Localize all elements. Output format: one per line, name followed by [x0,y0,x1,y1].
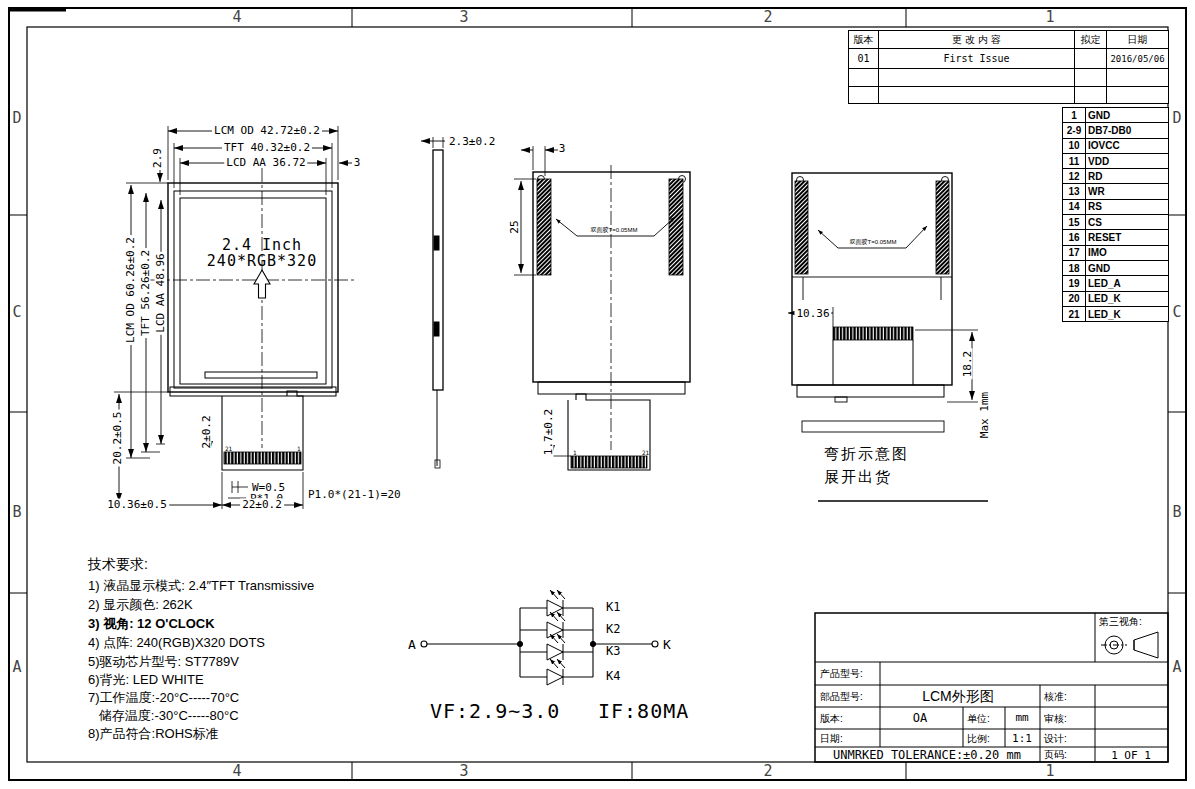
zone-col-label: 4 [232,764,241,779]
tech-note-line: 5)驱动芯片型号: ST7789V [88,653,239,671]
screen-size-label: 2.4 Inch [222,238,302,253]
led-circuit-geometry [421,590,658,685]
pin-table: 1GND 2-9DB7-DB0 10IOVCC 11VDD 12RD 13WR … [1062,107,1169,322]
dim-fpc-offset: 10.36±0.5 [105,499,169,510]
pin-name: WR [1086,184,1169,199]
led-branch-label: K3 [606,645,620,657]
side-view-geometry [421,137,445,468]
zone-col-label: 3 [459,10,468,25]
pin-number: 18 [1063,260,1086,275]
scale-value: 1:1 [1012,733,1032,744]
bend-caption-line2: 展开出货 [824,469,892,484]
tech-note-line: 6)背光: LED WHITE [88,671,204,689]
unit-value: mm [1015,712,1028,723]
tech-note-line: 4) 点阵: 240(RGB)X320 DOTS [88,634,265,652]
dim-lcm-od-height: LCM OD 60.26±0.2 [125,235,136,345]
led-branch-label: K2 [606,623,620,635]
zone-col-label: 4 [232,10,241,25]
led-branch-label: K1 [606,601,620,613]
revision-table: 版本 更 改 内 容 拟定 日期 01 First Issue 2016/05/… [848,30,1169,104]
zone-row-label: D [1172,111,1181,126]
tech-note-line: 储存温度:-30°C-----80°C [88,707,239,725]
revision-rev [849,69,879,87]
pin-name: DB7-DB0 [1086,123,1169,138]
pin-name: IOVCC [1086,138,1169,153]
dim-lcd-aa-height: LCD AA 48.96 [155,251,166,334]
product-model-label: 产品型号: [820,669,863,679]
back-view-geometry [514,146,690,470]
revision-header-drafted: 拟定 [1075,31,1107,49]
pin-name: GND [1086,108,1169,123]
zone-row-label: D [12,111,21,126]
version-value: OA [913,712,927,724]
review-label: 审核: [1044,714,1067,724]
pin-number: 14 [1063,199,1086,214]
fpc-pin-label: 1 [573,450,577,456]
dim-fpc-length: 20.2±0.5 [112,410,123,467]
part-model-label: 部品型号: [820,692,863,702]
tolerance-note: UNMRKED TOLERANCE:±0.20 mm [833,749,1021,761]
pin-name: VDD [1086,153,1169,168]
led-if-spec: IF:80MA [598,701,689,721]
revision-row [849,87,1169,104]
revision-row: 01 First Issue 2016/05/06 [849,49,1169,69]
part-model-value: LCM外形图 [922,689,994,703]
revision-rev: 01 [849,49,879,69]
tape-note: 双面胶T=0.05MM [591,227,638,233]
tech-note-line: 1) 液晶显示模式: 2.4″TFT Transmissive [88,577,314,595]
pin-number: 2-9 [1063,123,1086,138]
led-vf-spec: VF:2.9~3.0 [430,701,560,721]
fpc-pin-label: 21 [642,450,649,456]
pin-name: LED_K [1086,306,1169,321]
zone-row-label: C [12,305,21,320]
zone-row-label: A [1172,660,1181,675]
dim-tape-length: 25 [509,218,520,235]
pin-number: 16 [1063,230,1086,245]
page-label: 页码: [1044,750,1067,760]
revision-header-content: 更 改 内 容 [879,31,1075,49]
dim-fpc-exit: 1.7±0.2 [543,407,554,457]
pin-number: 13 [1063,184,1086,199]
zone-row-label: A [12,660,21,675]
pin-name: LED_K [1086,291,1169,306]
led-branch-label: K4 [606,670,620,682]
version-label: 版本: [820,714,843,724]
tech-note-line: 7)工作温度:-20°C-----70°C [88,689,239,707]
zone-row-label: B [12,505,21,520]
revision-drafted [1075,87,1107,104]
pin-number: 20 [1063,291,1086,306]
dim-connector-offset: 10.36 [794,308,831,319]
pin-name: RESET [1086,230,1169,245]
dim-tape-edge: 3 [559,143,566,154]
revision-content: First Issue [879,49,1075,69]
screen-resolution-label: 240*RGB*320 [207,254,317,269]
zone-col-label: 2 [763,764,772,779]
dim-thickness: 2.3±0.2 [447,136,497,147]
dim-lcm-od-width: LCM OD 42.72±0.2 [212,125,322,136]
led-anode-label: A [408,638,416,651]
third-angle-symbol [1101,632,1158,658]
bend-caption-line1: 弯折示意图 [824,446,909,461]
dim-lcd-aa-width: LCD AA 36.72 [224,157,307,168]
pin-number: 17 [1063,245,1086,260]
revision-date [1107,87,1169,104]
design-label: 设计: [1044,734,1067,744]
dim-fpc-top: 2±0.2 [201,413,212,450]
engineering-drawing-sheet: 4 3 2 1 4 3 2 1 D C B A D C B A 版本 更 改 内… [0,0,1195,789]
page-value: 1 OF 1 [1111,750,1151,761]
pin-name: LED_A [1086,276,1169,291]
pin-number: 11 [1063,153,1086,168]
zone-col-label: 3 [459,764,468,779]
unit-label: 单位: [967,714,990,724]
pin-number: 1 [1063,108,1086,123]
revision-date [1107,69,1169,87]
dim-side-gap: 3 [354,157,361,168]
dim-max-protrusion: Max 1mm [979,390,990,440]
zone-row-label: B [1172,505,1181,520]
tech-notes-title: 技术要求: [88,556,148,574]
dim-top-offset: 2.9 [152,146,163,170]
tech-note-line: 3) 视角: 12 O'CLOCK [88,615,215,633]
pin-number: 10 [1063,138,1086,153]
revision-drafted [1075,69,1107,87]
pin-name: GND [1086,260,1169,275]
tech-note-line: 2) 显示颜色: 262K [88,596,193,614]
scale-label: 比例: [967,734,990,744]
third-angle-label: 第三视角: [1099,617,1142,627]
revision-rev [849,87,879,104]
revision-content [879,87,1075,104]
revision-header-date: 日期 [1107,31,1169,49]
fpc-pin-label: 21 [225,446,232,452]
revision-content [879,69,1075,87]
date-label: 日期: [820,734,843,744]
pin-number: 15 [1063,215,1086,230]
pin-name: RD [1086,169,1169,184]
revision-date: 2016/05/06 [1107,49,1169,69]
dim-unfold-length: 18.2 [962,349,973,380]
pin-name: IMO [1086,245,1169,260]
dim-tft-height: TFT 56.26±0.2 [140,248,151,338]
tape-note: 双面胶T=0.05MM [850,239,897,245]
led-cathode-label: K [663,638,671,651]
tech-note-line: 8)产品符合:ROHS标准 [88,725,219,743]
zone-col-label: 1 [1045,764,1054,779]
revision-header-rev: 版本 [849,31,879,49]
fpc-pin-label: 1 [297,446,301,452]
dim-fpc-width: 22±0.2 [240,499,284,510]
approve-label: 核准: [1044,692,1067,702]
dim-tft-width: TFT 40.32±0.2 [222,142,312,153]
zone-row-label: C [1172,305,1181,320]
revision-drafted [1075,49,1107,69]
dim-pad-pitch-total: P1.0*(21-1)=20 [306,489,403,500]
zone-col-label: 2 [763,10,772,25]
pin-name: CS [1086,215,1169,230]
pin-name: RS [1086,199,1169,214]
zone-col-label: 1 [1045,10,1054,25]
revision-row [849,69,1169,87]
pin-number: 21 [1063,306,1086,321]
pin-number: 19 [1063,276,1086,291]
pin-number: 12 [1063,169,1086,184]
